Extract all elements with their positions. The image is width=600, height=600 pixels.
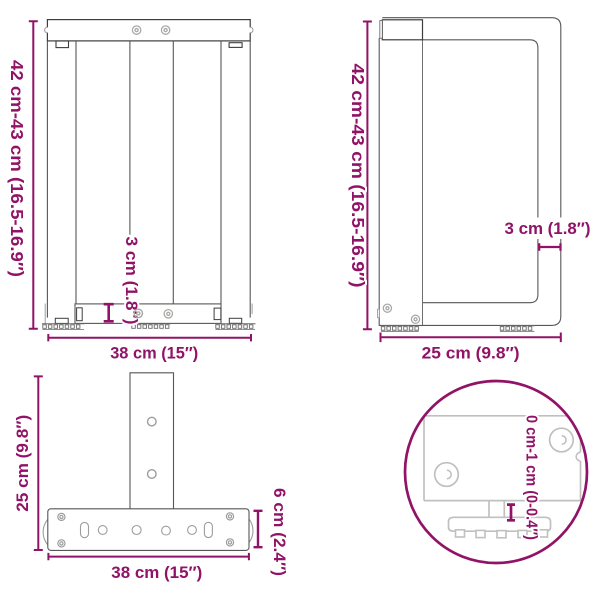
svg-text:0 cm-1 cm (0-0.4″): 0 cm-1 cm (0-0.4″) bbox=[522, 415, 539, 540]
svg-text:42 cm-43 cm (16.5-16.9″): 42 cm-43 cm (16.5-16.9″) bbox=[348, 64, 368, 288]
svg-text:42 cm-43 cm (16.5-16.9″): 42 cm-43 cm (16.5-16.9″) bbox=[7, 60, 27, 277]
svg-text:38 cm (15″): 38 cm (15″) bbox=[111, 564, 202, 582]
svg-text:38 cm (15″): 38 cm (15″) bbox=[110, 344, 198, 362]
svg-text:25 cm (9.8″): 25 cm (9.8″) bbox=[14, 415, 32, 512]
svg-text:25 cm (9.8″): 25 cm (9.8″) bbox=[422, 345, 520, 363]
svg-text:3 cm (1.8″): 3 cm (1.8″) bbox=[122, 237, 140, 325]
svg-text:6 cm (2.4″): 6 cm (2.4″) bbox=[270, 488, 288, 576]
svg-text:3 cm (1.8″): 3 cm (1.8″) bbox=[505, 220, 591, 238]
